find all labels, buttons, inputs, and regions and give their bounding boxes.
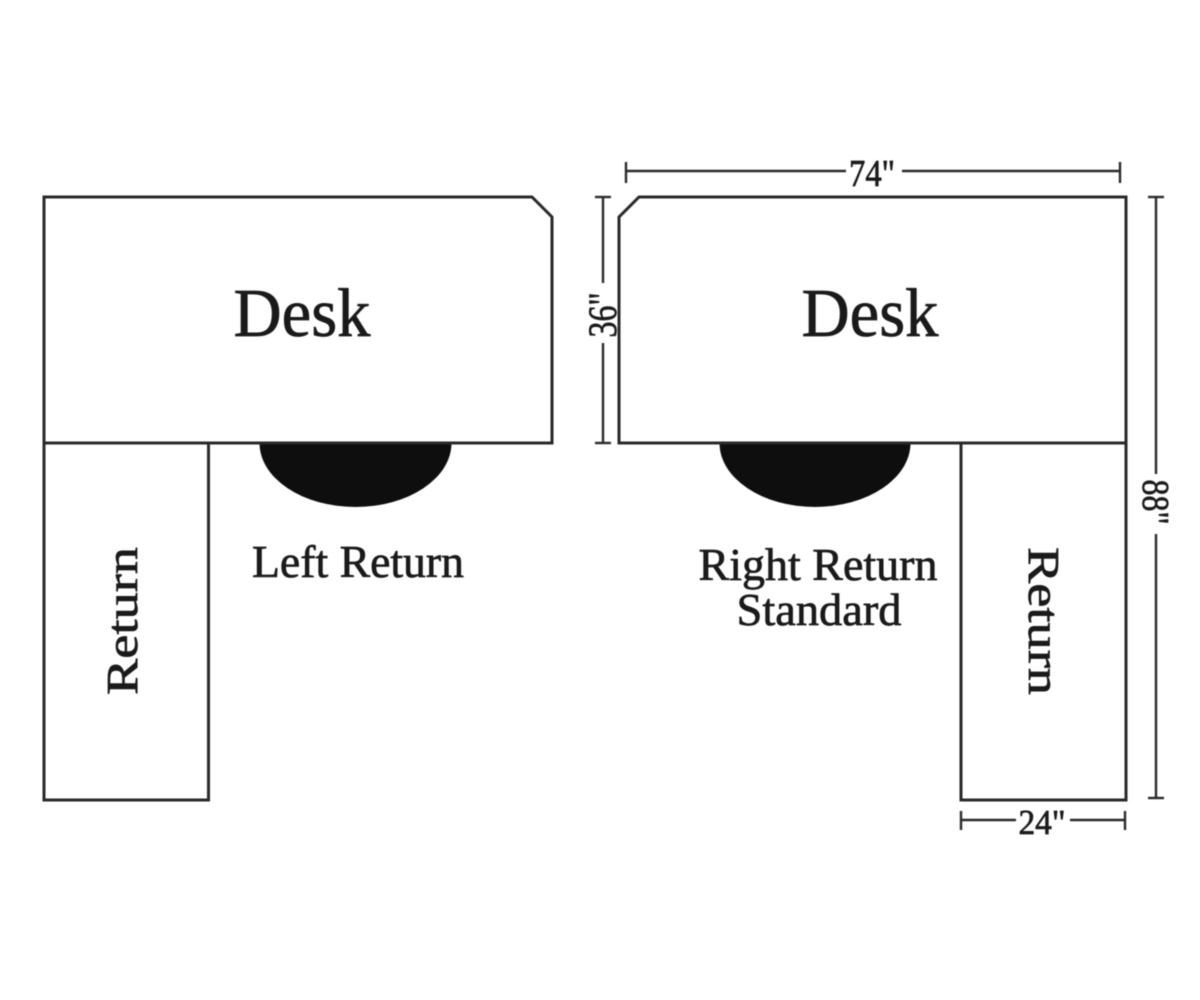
svg-text:Desk: Desk [802,275,939,351]
svg-text:88": 88" [1134,480,1176,525]
svg-text:36": 36" [580,293,625,338]
svg-text:Left Return: Left Return [252,536,464,587]
svg-text:Right Return: Right Return [699,539,938,590]
svg-text:Return: Return [98,547,147,695]
svg-text:Standard: Standard [737,584,902,635]
svg-text:Return: Return [1019,547,1068,695]
svg-text:24": 24" [1019,803,1066,842]
svg-text:74": 74" [849,153,895,195]
svg-text:Desk: Desk [234,275,371,351]
